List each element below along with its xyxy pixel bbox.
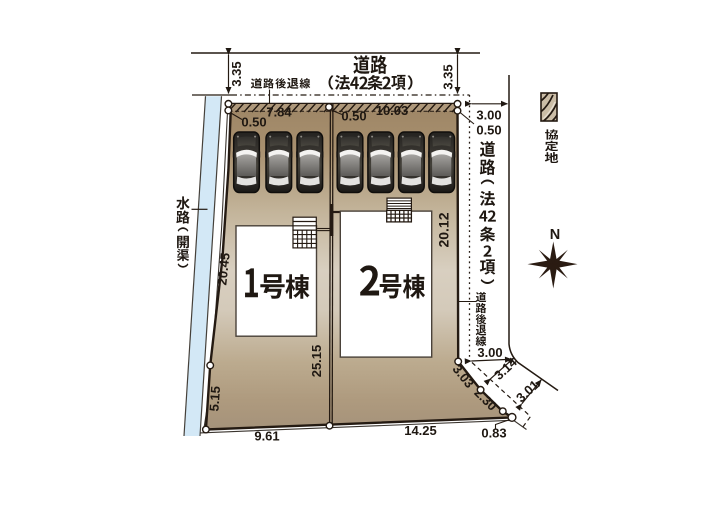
svg-text:3.35: 3.35 bbox=[229, 61, 244, 86]
svg-text:0.50: 0.50 bbox=[476, 123, 501, 138]
svg-text:10.03: 10.03 bbox=[376, 103, 409, 118]
svg-text:7.84: 7.84 bbox=[266, 105, 292, 120]
svg-text:0.50: 0.50 bbox=[241, 115, 266, 130]
svg-text:3.00: 3.00 bbox=[477, 345, 502, 360]
svg-text:20.12: 20.12 bbox=[436, 212, 452, 247]
svg-text:9.61: 9.61 bbox=[254, 429, 279, 444]
svg-text:3.35: 3.35 bbox=[441, 64, 456, 89]
svg-text:14.25: 14.25 bbox=[404, 423, 437, 438]
svg-text:0.83: 0.83 bbox=[481, 426, 506, 441]
svg-text:3.00: 3.00 bbox=[476, 107, 501, 122]
svg-text:0.50: 0.50 bbox=[341, 109, 366, 124]
svg-text:25.15: 25.15 bbox=[309, 345, 324, 378]
svg-text:N: N bbox=[550, 227, 560, 243]
svg-text:5.15: 5.15 bbox=[206, 386, 223, 412]
